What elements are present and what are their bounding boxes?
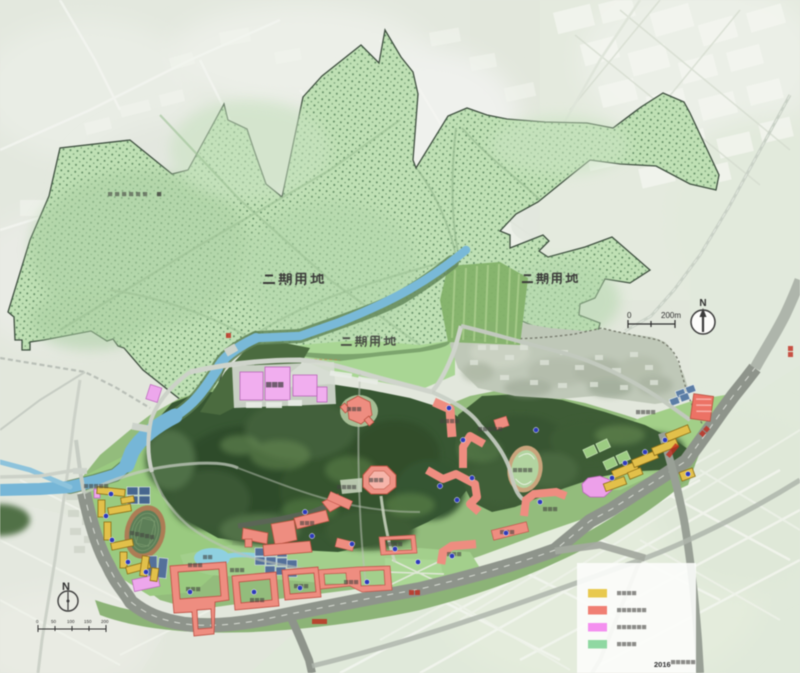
svg-text:200m: 200m — [661, 311, 681, 320]
svg-text:0: 0 — [627, 311, 632, 320]
svg-text:N: N — [699, 298, 706, 309]
svg-text:50: 50 — [51, 619, 57, 624]
svg-text:100: 100 — [67, 619, 75, 624]
svg-text:2016: 2016 — [654, 660, 671, 669]
svg-text:150: 150 — [84, 619, 92, 624]
svg-text:200: 200 — [101, 619, 109, 624]
